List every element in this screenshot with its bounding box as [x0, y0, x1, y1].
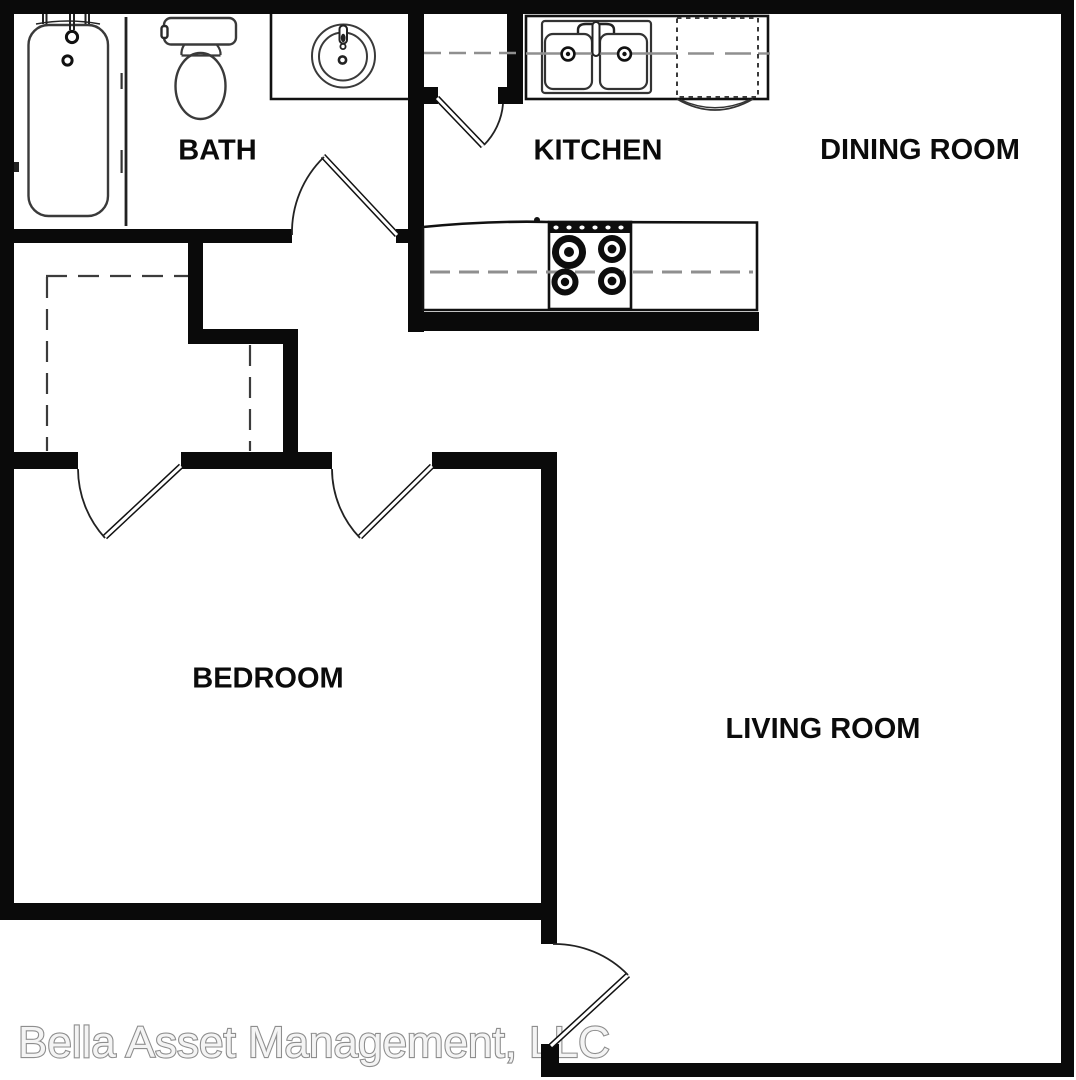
svg-text:BEDROOM: BEDROOM — [192, 663, 343, 695]
svg-text:DINING ROOM: DINING ROOM — [820, 134, 1020, 166]
svg-text:Bella Asset Management, LLC: Bella Asset Management, LLC — [18, 1018, 610, 1067]
svg-text:BATH: BATH — [178, 135, 256, 167]
svg-text:LIVING ROOM: LIVING ROOM — [726, 713, 921, 745]
svg-text:KITCHEN: KITCHEN — [534, 135, 663, 167]
